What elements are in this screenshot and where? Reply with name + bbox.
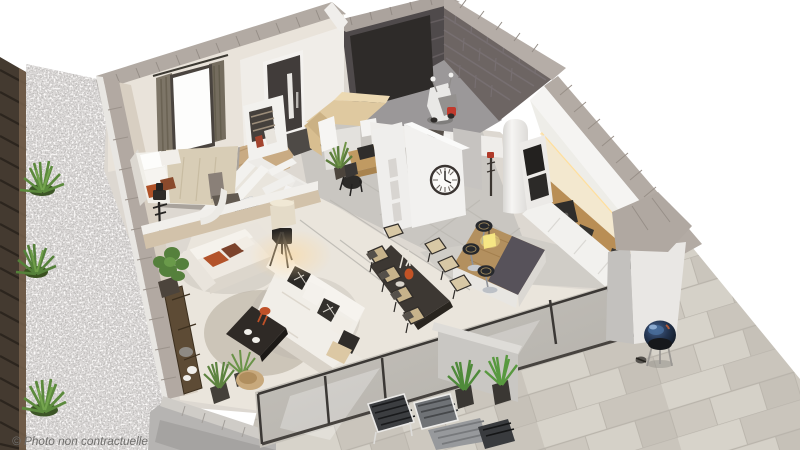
svg-text:© Photo non contractuelle: © Photo non contractuelle xyxy=(12,434,148,448)
